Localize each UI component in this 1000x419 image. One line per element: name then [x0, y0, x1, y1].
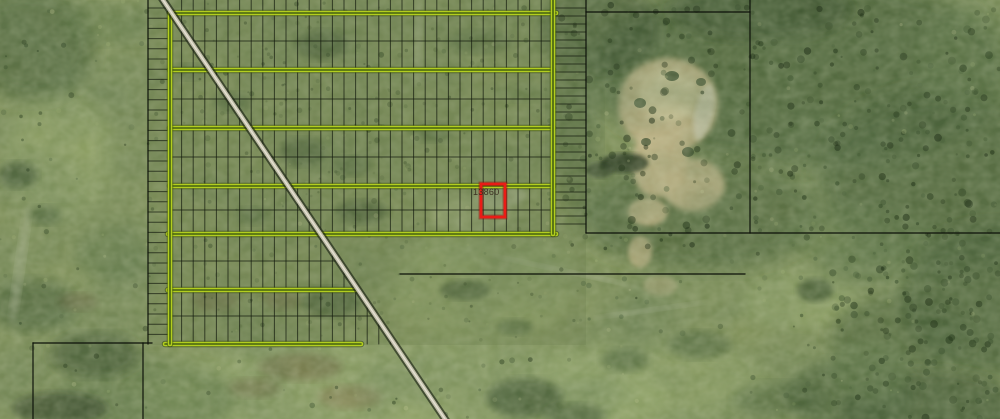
map-viewport[interactable]: 13860	[0, 0, 1000, 419]
parcel-id-label: 13860	[473, 187, 500, 197]
aerial-map-image[interactable]: 13860	[0, 0, 1000, 419]
